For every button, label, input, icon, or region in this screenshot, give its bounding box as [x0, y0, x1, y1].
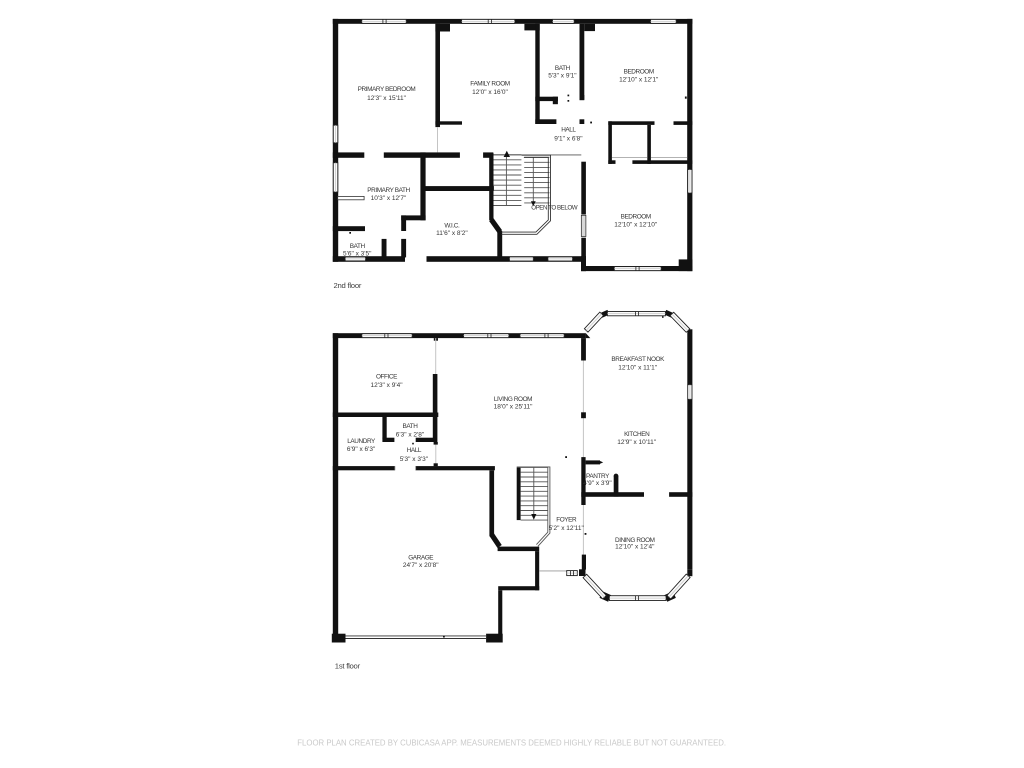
svg-text:12'3" x 9'4": 12'3" x 9'4"	[370, 382, 403, 389]
svg-text:OFFICE: OFFICE	[376, 373, 397, 380]
svg-text:12'10" x 12'10": 12'10" x 12'10"	[614, 221, 658, 228]
svg-text:FLOOR PLAN CREATED BY CUBICASA: FLOOR PLAN CREATED BY CUBICASA APP. MEAS…	[297, 739, 726, 748]
svg-text:HALL: HALL	[561, 127, 576, 134]
svg-text:11'6" x 8'2": 11'6" x 8'2"	[436, 230, 468, 237]
svg-text:12'10" x 12'4": 12'10" x 12'4"	[615, 544, 655, 551]
svg-text:LAUNDRY: LAUNDRY	[347, 438, 376, 445]
svg-text:5'3" x 3'3": 5'3" x 3'3"	[400, 456, 429, 463]
svg-text:12'0" x 16'0": 12'0" x 16'0"	[472, 89, 508, 96]
svg-text:LIVING ROOM: LIVING ROOM	[494, 396, 532, 403]
svg-text:FAMILY ROOM: FAMILY ROOM	[470, 80, 509, 87]
svg-text:6'9" x 6'3": 6'9" x 6'3"	[347, 446, 376, 453]
svg-text:12'3" x 15'11": 12'3" x 15'11"	[367, 95, 406, 102]
svg-text:6'3" x 2'8": 6'3" x 2'8"	[396, 431, 425, 438]
svg-text:1st floor: 1st floor	[335, 662, 361, 671]
svg-text:W.I.C.: W.I.C.	[444, 222, 460, 229]
svg-text:BATH: BATH	[403, 423, 419, 430]
svg-text:12'10" x 12'1": 12'10" x 12'1"	[619, 77, 659, 84]
svg-text:BATH: BATH	[555, 65, 571, 72]
svg-text:BATH: BATH	[350, 243, 366, 250]
svg-text:12'9" x 10'11": 12'9" x 10'11"	[617, 439, 656, 446]
svg-text:18'0" x 25'11": 18'0" x 25'11"	[494, 404, 533, 411]
svg-text:24'7" x 20'8": 24'7" x 20'8"	[403, 562, 439, 569]
svg-text:GARAGE: GARAGE	[408, 554, 433, 561]
svg-text:5'2" x 12'11": 5'2" x 12'11"	[549, 525, 585, 532]
svg-text:FOYER: FOYER	[556, 517, 577, 524]
svg-text:5'6" x 3'5": 5'6" x 3'5"	[343, 251, 372, 258]
svg-text:12'10" x 11'1": 12'10" x 11'1"	[618, 365, 657, 372]
svg-text:5'3" x 9'1": 5'3" x 9'1"	[548, 73, 577, 80]
svg-text:HALL: HALL	[407, 447, 422, 454]
svg-text:BEDROOM: BEDROOM	[624, 69, 654, 76]
svg-text:OPEN TO BELOW: OPEN TO BELOW	[531, 205, 577, 212]
svg-text:PRIMARY BATH: PRIMARY BATH	[367, 187, 410, 194]
svg-text:10'3" x 12'7": 10'3" x 12'7"	[371, 195, 407, 202]
svg-text:PRIMARY BEDROOM: PRIMARY BEDROOM	[358, 86, 416, 93]
svg-text:2nd floor: 2nd floor	[334, 281, 362, 290]
svg-text:4'9" x 3'9": 4'9" x 3'9"	[583, 480, 612, 487]
svg-text:KITCHEN: KITCHEN	[624, 431, 650, 438]
svg-text:BREAKFAST NOOK: BREAKFAST NOOK	[611, 356, 665, 363]
svg-text:BEDROOM: BEDROOM	[621, 214, 651, 221]
svg-text:9'1" x 6'8": 9'1" x 6'8"	[554, 136, 583, 143]
svg-text:PANTRY: PANTRY	[586, 473, 610, 480]
